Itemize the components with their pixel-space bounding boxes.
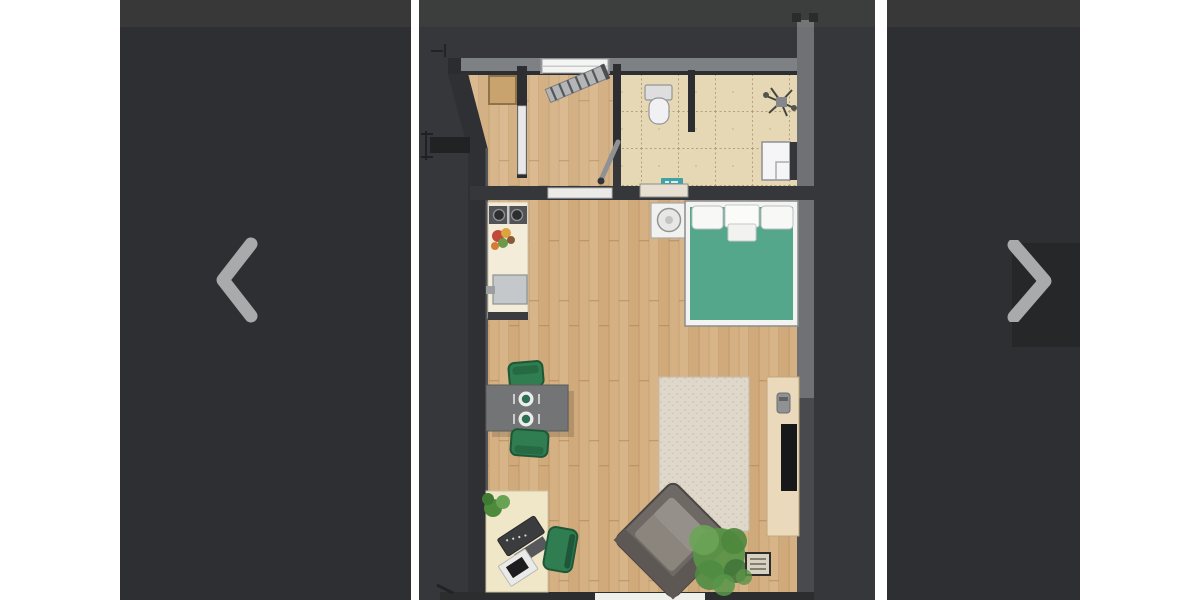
- bed: [685, 201, 798, 326]
- photo-carousel: [0, 0, 1200, 600]
- dimension-ticks: [421, 44, 453, 593]
- shower-cabin: [762, 142, 797, 180]
- prev-button[interactable]: [208, 237, 264, 323]
- prev-image-edge[interactable]: [0, 0, 120, 600]
- entry-door: [518, 106, 526, 174]
- tv: [781, 424, 797, 491]
- left-wall: [468, 150, 488, 592]
- carousel-backdrop-left: [120, 0, 411, 600]
- dining-chair-top: [508, 361, 544, 389]
- bathroom-partition: [688, 70, 695, 132]
- bathroom-west-wall: [613, 64, 621, 142]
- floorplan-slide[interactable]: [419, 0, 875, 600]
- stove: [489, 206, 527, 224]
- toilet: [645, 85, 672, 124]
- floorplan-svg: [419, 0, 875, 600]
- kitchen-counter: [486, 202, 528, 320]
- bedroom-console: [640, 184, 688, 197]
- dining-chair-bottom: [510, 429, 549, 458]
- chevron-right-icon: [1001, 240, 1057, 322]
- green-lounge-chair: [542, 526, 578, 573]
- right-wall: [797, 20, 814, 398]
- next-image-edge[interactable]: [1080, 0, 1200, 600]
- decor-object: [777, 393, 790, 413]
- chevron-left-icon: [208, 237, 264, 323]
- entry-wardrobe: [489, 76, 516, 104]
- hall-sliding-door: [548, 188, 612, 198]
- south-window: [595, 593, 705, 600]
- nightstand: [651, 203, 688, 238]
- next-button[interactable]: [1001, 240, 1057, 322]
- exterior-wall-stub: [430, 137, 470, 153]
- tv-sideboard: [767, 377, 799, 536]
- desk: [482, 491, 553, 592]
